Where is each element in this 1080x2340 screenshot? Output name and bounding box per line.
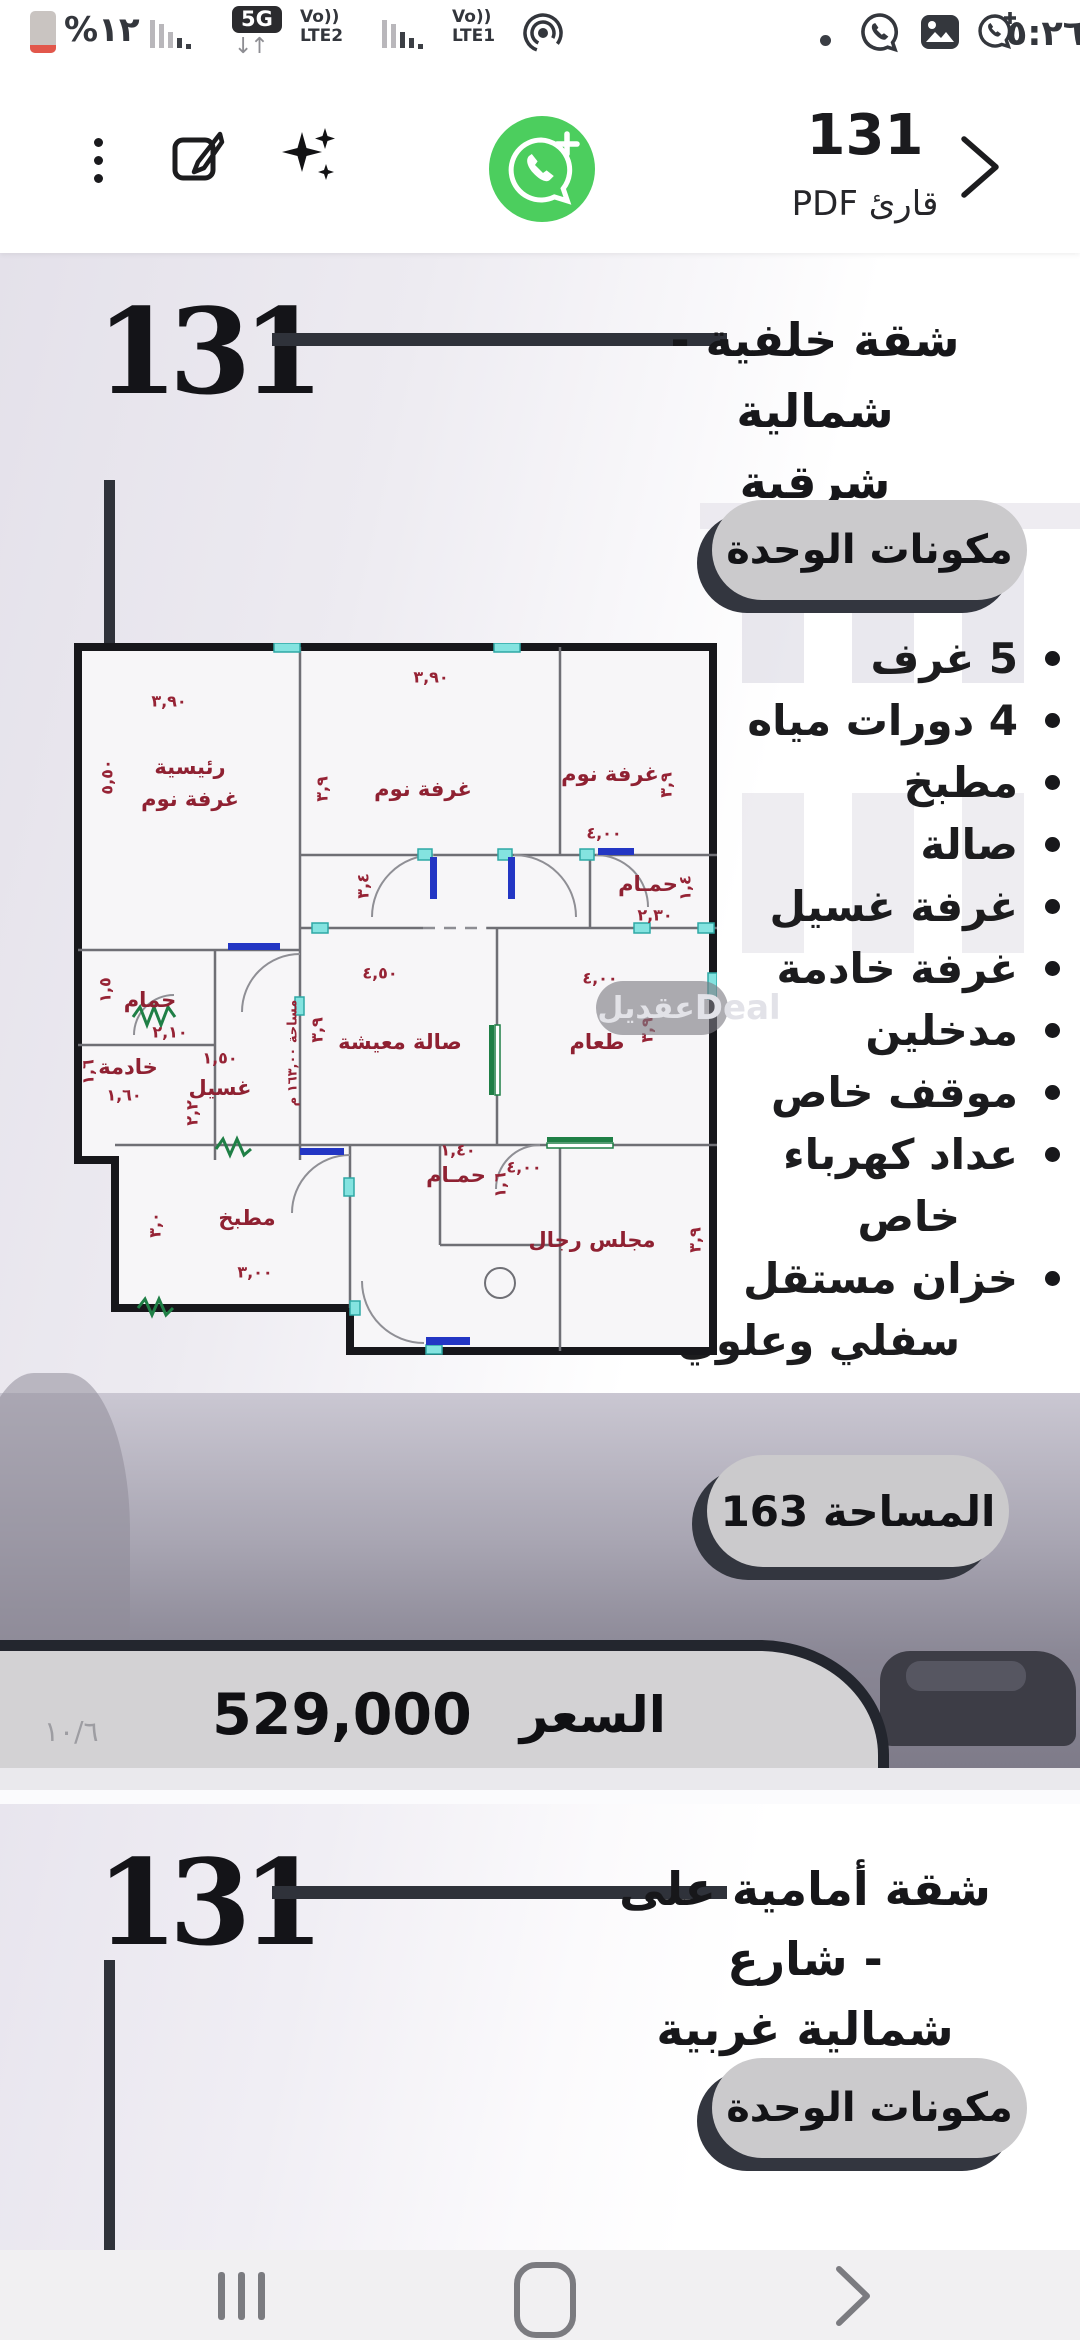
- back-button[interactable]: [832, 2264, 874, 2328]
- unit-components-heading: مكونات الوحدة: [712, 2058, 1027, 2158]
- overflow-menu-button[interactable]: [94, 138, 103, 192]
- room-label: حمام: [124, 988, 177, 1012]
- ai-sparkles-button[interactable]: [278, 124, 340, 186]
- dim-label: ٣,٩٠: [151, 692, 186, 711]
- dim-label: ٤,٥٠: [362, 964, 397, 983]
- whatsapp-icon: [858, 10, 902, 54]
- dim-label: ٢,٣٠: [637, 906, 672, 925]
- decorative-vline: [104, 1960, 115, 2250]
- chevron-forward-button[interactable]: [956, 134, 1004, 200]
- dim-label: ٣,٠٠: [237, 1263, 272, 1282]
- room-label: غرفة نوم: [561, 762, 659, 786]
- pdf-page-2[interactable]: 131 شقة أمامية على شارع - شمالية غربية م…: [0, 1804, 1080, 2250]
- dim-label: ١,٤٠: [440, 1141, 475, 1160]
- dim-label: ٣,٩: [686, 1227, 705, 1253]
- unit-number-decorative: 131: [96, 293, 315, 411]
- system-navigation-bar: [0, 2250, 1080, 2340]
- room-label: حمـام: [618, 872, 678, 896]
- room-label: مجلس رجال: [528, 1228, 655, 1252]
- apartment-title-line2: شمالية غربية: [570, 1994, 1040, 2064]
- dim-label: ١,٤: [676, 875, 695, 901]
- network-lte2: Vo))LTE2: [300, 8, 343, 46]
- data-arrows-icon: ↓↑: [234, 34, 267, 59]
- room-label: غرفة نوم: [374, 777, 472, 801]
- dim-label: ٣,٩٠: [413, 668, 448, 687]
- dim-label: ٢,٢: [183, 1100, 202, 1126]
- room-label: غسيل: [188, 1076, 251, 1100]
- dim-label: ٤,٠٠: [506, 1158, 541, 1177]
- gallery-icon: [918, 10, 962, 54]
- battery-icon: [30, 11, 56, 53]
- page-indicator: ١٠/٦: [44, 1715, 99, 1748]
- apartment-title: شقة أمامية على شارع - شمالية غربية: [570, 1854, 1040, 2064]
- dim-label: ١,٦: [79, 1059, 98, 1085]
- clock-time: ٥:٢٦: [1006, 14, 1080, 54]
- area-badge: المساحة 163: [707, 1455, 1009, 1567]
- whatsapp-plus-icon: [489, 116, 595, 222]
- room-label: صالة معيشة: [338, 1030, 462, 1054]
- area-note: مساحة ١٦٣,٠٠ م: [286, 1000, 301, 1107]
- pdf-page-1[interactable]: 131 شقة خلفية - شمالية شرقية مكونات الوح…: [0, 253, 1080, 1768]
- hotspot-icon: [522, 12, 564, 54]
- page-separator: [0, 1768, 1080, 1804]
- status-bar: %١٢ 5G ↓↑ Vo))LTE2 Vo))LTE1 ٥:٢٦: [0, 0, 1080, 64]
- signal-bars-icon: [150, 16, 196, 52]
- dim-label: ١,٥٠: [202, 1049, 237, 1068]
- unit-components-heading: مكونات الوحدة: [712, 500, 1027, 600]
- edit-annotate-button[interactable]: [168, 126, 228, 186]
- signal-bars-icon: [382, 16, 428, 52]
- pdf-reader-toolbar: 131 قارئ PDF: [0, 64, 1080, 253]
- battery-percent: %١٢: [64, 10, 140, 50]
- room-label: خادمة: [98, 1055, 158, 1079]
- room-label: مطبخ: [218, 1206, 275, 1230]
- apartment-title-line1: شقة أمامية على شارع -: [570, 1854, 1040, 1994]
- price-banner: السعر 529,000: [0, 1640, 889, 1768]
- apartment-title-line1: شقة خلفية - شمالية: [600, 305, 1030, 447]
- app-name-subtitle: قارئ PDF: [740, 184, 990, 224]
- room-label: غرفة نوم: [141, 787, 239, 811]
- dim-label: ١,٦٠: [106, 1086, 141, 1105]
- dim-label: ١,٥: [96, 977, 115, 1003]
- dim-label: ٣,٤: [354, 873, 373, 899]
- deal-watermark: عقديل Deal: [596, 981, 728, 1035]
- car-window: [906, 1661, 1026, 1691]
- dim-label: ٣,٩: [308, 1017, 327, 1043]
- watermark-arabic: عقديل: [597, 991, 694, 1026]
- document-title: 131: [790, 108, 940, 164]
- network-lte1: Vo))LTE1: [452, 8, 495, 46]
- price-label: السعر: [520, 1686, 666, 1744]
- room-label: حمـام: [426, 1163, 486, 1187]
- recent-apps-button[interactable]: [218, 2272, 278, 2324]
- watermark-latin: Deal: [695, 988, 781, 1028]
- apartment-title: شقة خلفية - شمالية شرقية: [600, 305, 1030, 518]
- dim-label: ٣,٠: [146, 1212, 165, 1238]
- parked-car: [880, 1651, 1076, 1746]
- room-label: رئيسية: [154, 755, 225, 779]
- network-5g-badge: 5G: [232, 6, 282, 33]
- price-value: 529,000: [212, 1682, 472, 1748]
- dim-label: ٥,٥٠: [98, 759, 117, 794]
- whatsapp-share-button[interactable]: [489, 116, 595, 222]
- dim-label: ٤,٠٠: [586, 824, 621, 843]
- unit-number-decorative: 131: [96, 1844, 315, 1962]
- home-button[interactable]: [514, 2262, 576, 2338]
- dim-label: ٢,١٠: [152, 1023, 187, 1042]
- dim-label: ٣,٩: [657, 772, 676, 798]
- notification-dot-icon: [820, 35, 831, 46]
- dim-label: ٣,٩: [313, 776, 332, 802]
